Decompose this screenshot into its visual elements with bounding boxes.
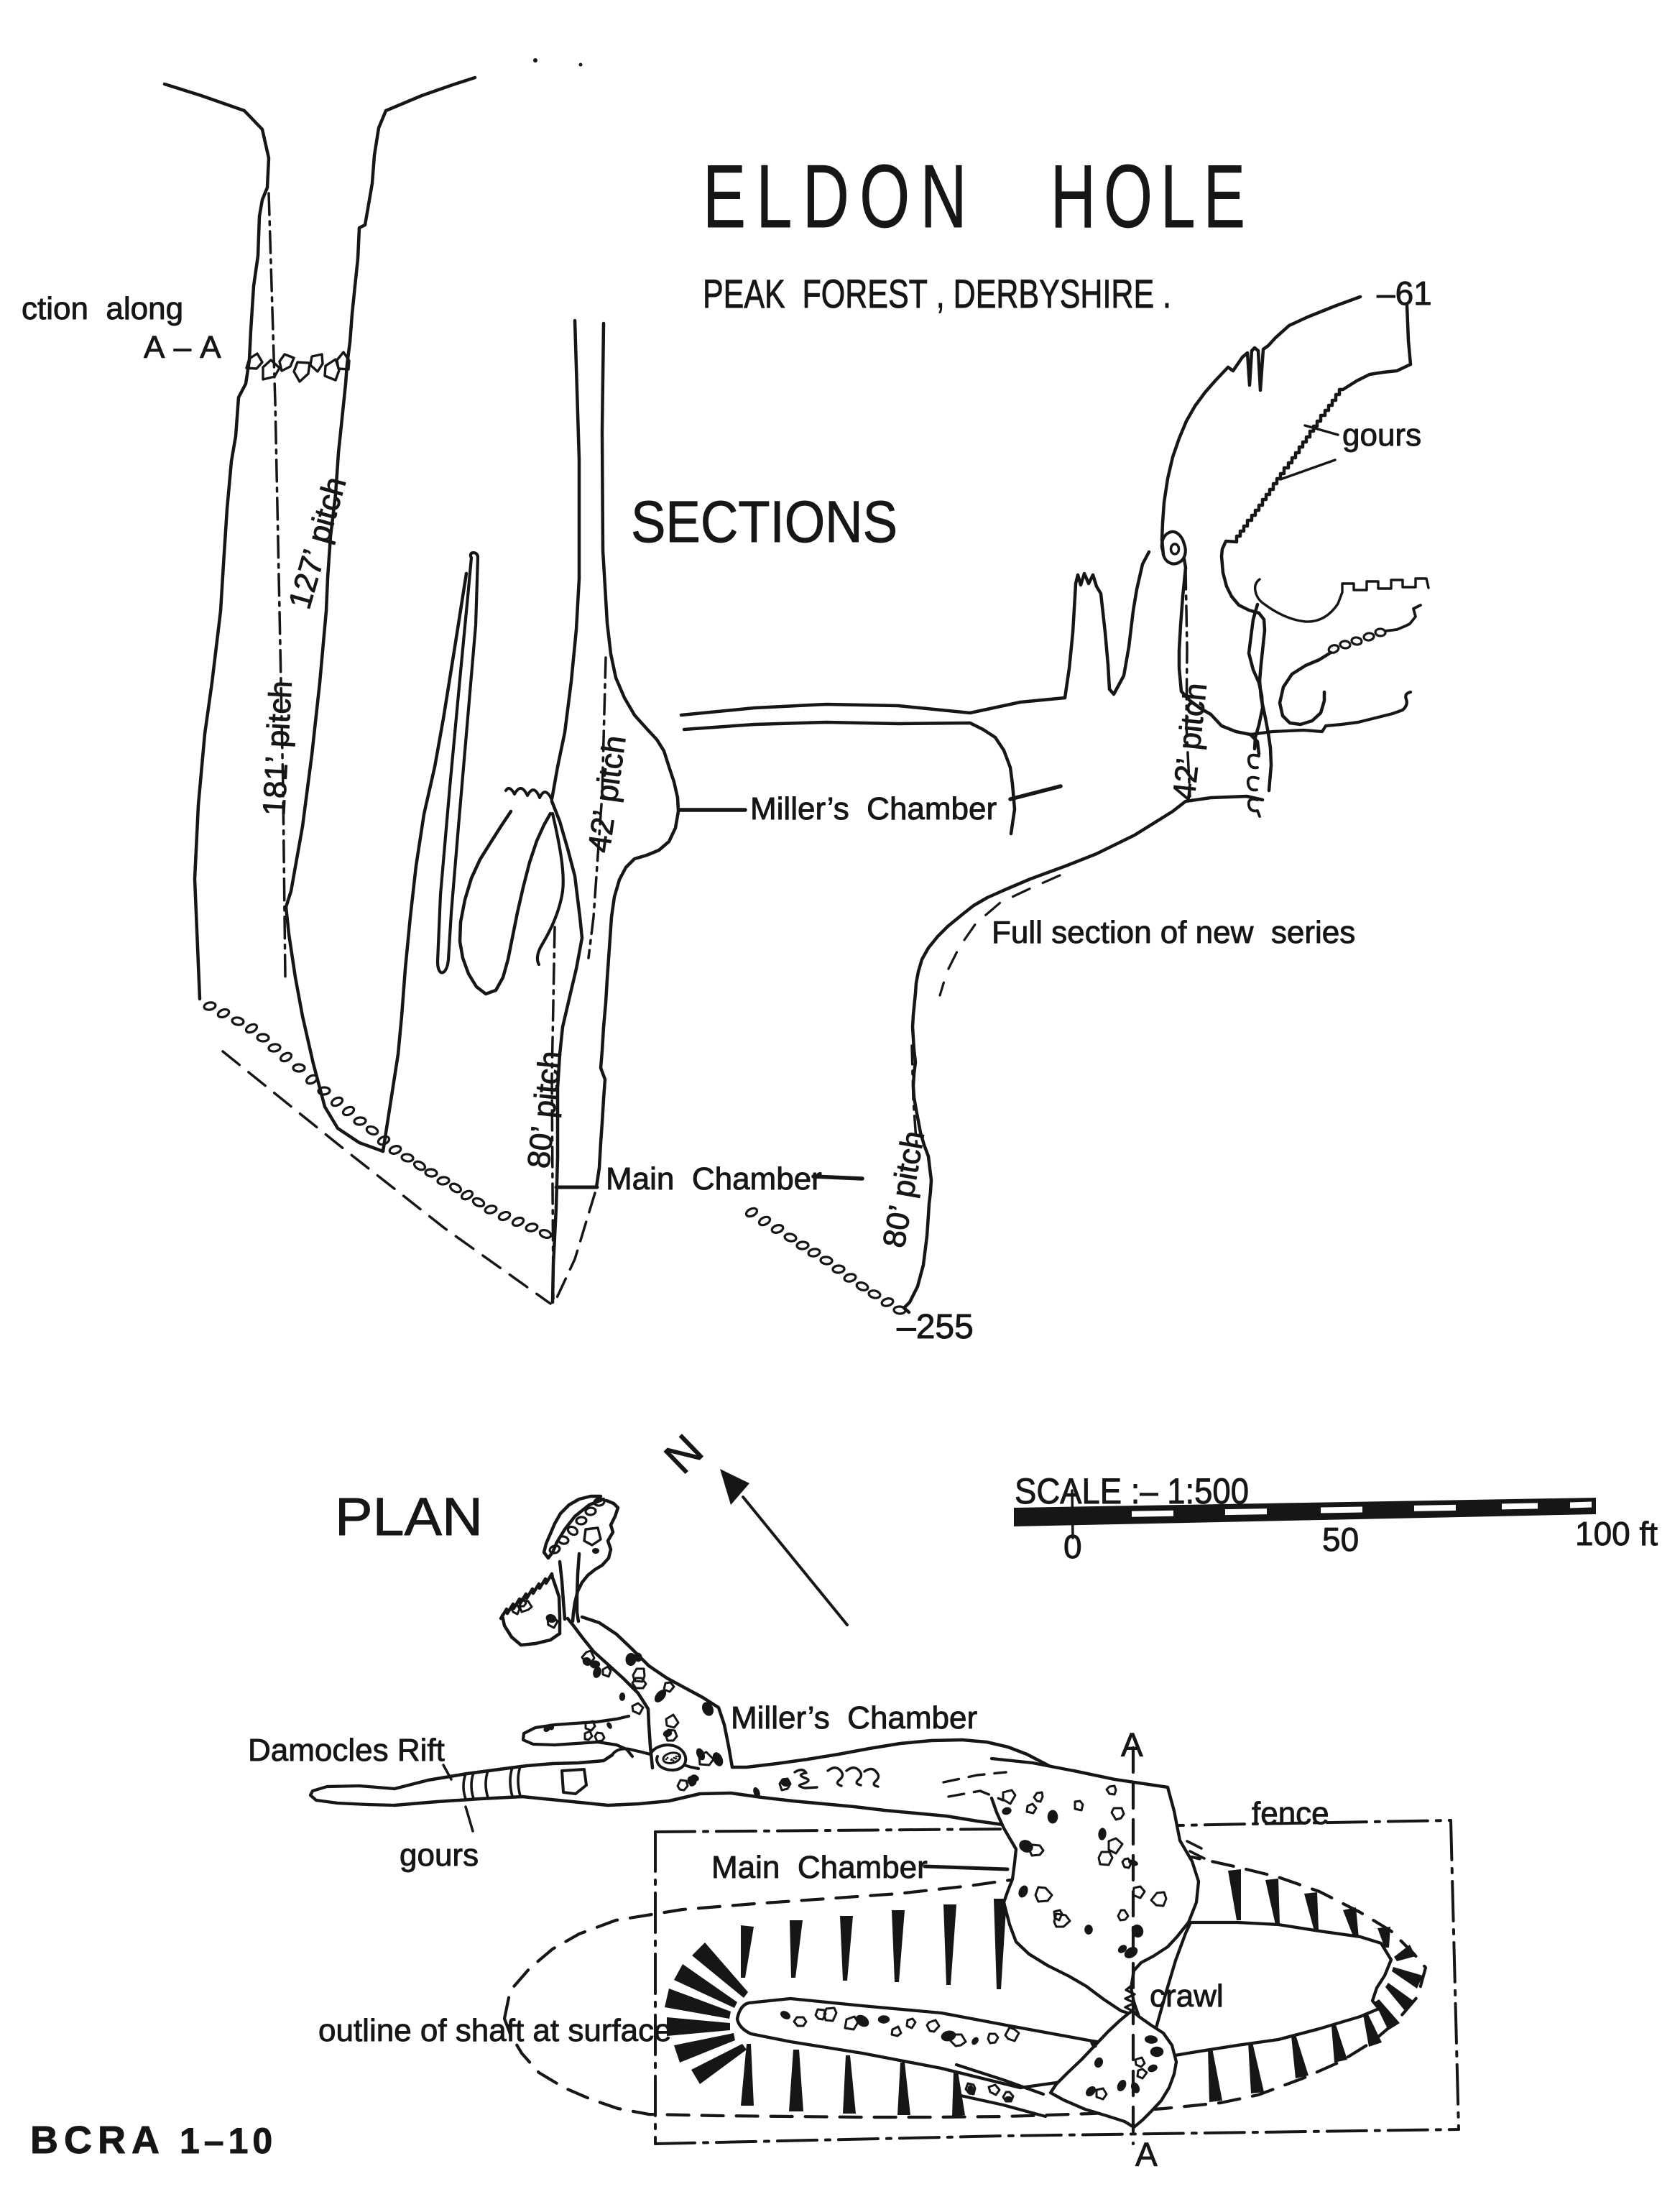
svg-text:Miller’s Chamber: Miller’s Chamber xyxy=(750,791,997,826)
svg-text:outline of shaft at surface: outline of shaft at surface xyxy=(318,2013,672,2048)
svg-text:fence: fence xyxy=(1252,1796,1329,1831)
svg-text:80’ pitch: 80’ pitch xyxy=(877,1128,932,1250)
svg-text:0: 0 xyxy=(1063,1528,1082,1565)
svg-text:80’ pitch: 80’ pitch xyxy=(521,1049,568,1170)
svg-text:ELDON: ELDON xyxy=(703,147,977,246)
svg-text:A – A: A – A xyxy=(144,330,221,365)
svg-text:Miller’s Chamber: Miller’s Chamber xyxy=(731,1700,977,1736)
svg-text:A: A xyxy=(1121,1726,1143,1764)
svg-text:Damocles Rift: Damocles Rift xyxy=(248,1733,445,1768)
svg-text:42’ pitch: 42’ pitch xyxy=(1166,681,1214,802)
svg-text:1–10: 1–10 xyxy=(180,2121,277,2161)
svg-text:100 ft: 100 ft xyxy=(1575,1515,1658,1552)
svg-text:gours: gours xyxy=(1342,418,1421,453)
svg-text:181’ pitch: 181’ pitch xyxy=(257,680,299,817)
svg-text:50: 50 xyxy=(1322,1521,1359,1558)
svg-text:127’ pitch: 127’ pitch xyxy=(282,473,354,613)
svg-text:Main Chamber: Main Chamber xyxy=(711,1850,928,1885)
svg-text:SECTIONS: SECTIONS xyxy=(631,489,897,555)
svg-text:Main Chamber: Main Chamber xyxy=(606,1161,822,1197)
svg-text:HOLE: HOLE xyxy=(1051,147,1253,246)
svg-text:BCRA: BCRA xyxy=(30,2119,165,2162)
svg-text:–61: –61 xyxy=(1377,275,1432,312)
svg-text:ction along: ction along xyxy=(22,291,183,326)
svg-text:N: N xyxy=(655,1425,713,1483)
svg-text:–255: –255 xyxy=(897,1308,974,1346)
svg-text:PEAK FOREST , DERBYSHIRE .: PEAK FOREST , DERBYSHIRE . xyxy=(703,271,1171,316)
svg-text:gours: gours xyxy=(400,1838,479,1873)
svg-text:PLAN: PLAN xyxy=(335,1487,483,1547)
svg-text:Full section of new series: Full section of new series xyxy=(992,915,1355,950)
svg-text:crawl: crawl xyxy=(1150,1978,1224,2014)
svg-text:42’ pitch: 42’ pitch xyxy=(581,733,632,854)
svg-text:A: A xyxy=(1135,2136,1158,2173)
